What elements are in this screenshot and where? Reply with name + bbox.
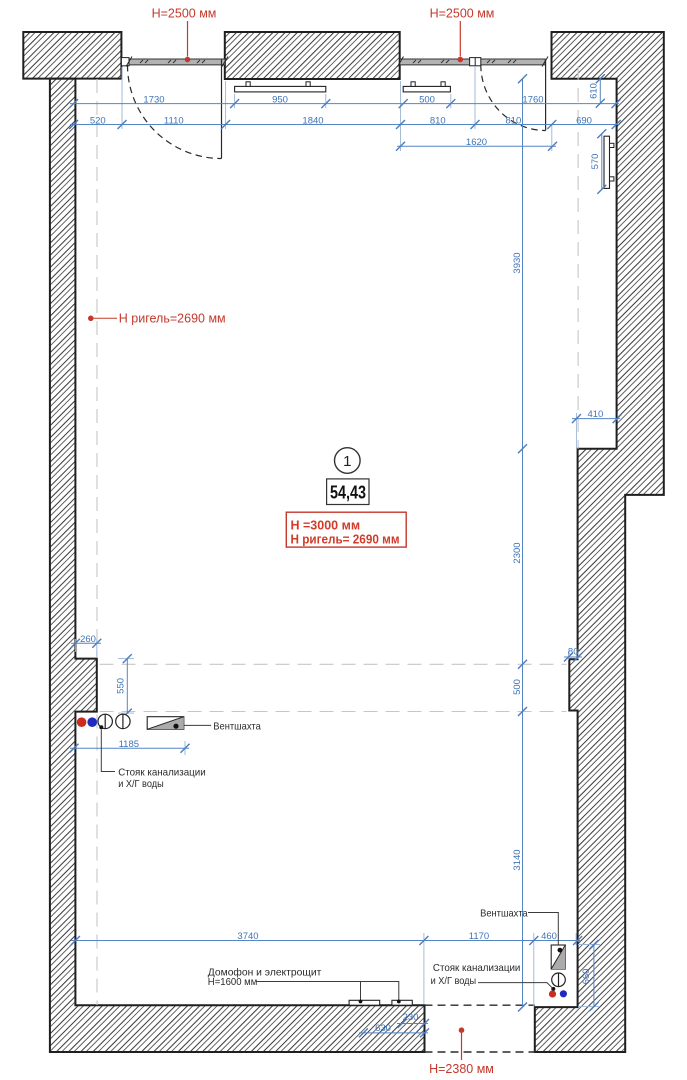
svg-text:2300: 2300 <box>512 542 523 563</box>
svg-text:Н ригель= 2690 мм: Н ригель= 2690 мм <box>291 532 400 546</box>
svg-text:1730: 1730 <box>143 94 164 105</box>
svg-text:630: 630 <box>375 1023 391 1034</box>
svg-text:Вентшахта: Вентшахта <box>213 720 261 732</box>
svg-text:810: 810 <box>505 115 521 126</box>
svg-text:1: 1 <box>343 453 351 470</box>
svg-text:Н ригель=2690 мм: Н ригель=2690 мм <box>119 311 226 325</box>
svg-text:1760: 1760 <box>522 94 543 105</box>
svg-text:Н=2500 мм: Н=2500 мм <box>152 7 217 21</box>
svg-text:Н=1600 мм: Н=1600 мм <box>208 976 257 988</box>
svg-text:и Х/Г воды: и Х/Г воды <box>431 975 477 987</box>
svg-text:500: 500 <box>419 94 435 105</box>
svg-text:3930: 3930 <box>512 252 523 273</box>
svg-text:570: 570 <box>590 154 601 170</box>
svg-text:54,43: 54,43 <box>330 483 366 503</box>
svg-text:410: 410 <box>587 409 603 420</box>
svg-text:Н =3000 мм: Н =3000 мм <box>291 519 361 533</box>
svg-text:690: 690 <box>576 115 592 126</box>
svg-text:1185: 1185 <box>119 739 139 750</box>
svg-text:460: 460 <box>541 931 557 942</box>
svg-text:950: 950 <box>272 94 288 105</box>
svg-text:1170: 1170 <box>469 931 489 942</box>
svg-text:1110: 1110 <box>164 115 184 126</box>
svg-text:500: 500 <box>512 679 523 695</box>
svg-text:Вентшахта: Вентшахта <box>480 907 528 919</box>
svg-text:260: 260 <box>80 634 96 645</box>
svg-text:80: 80 <box>568 647 579 658</box>
svg-text:Н=2500 мм: Н=2500 мм <box>430 7 495 21</box>
svg-text:3140: 3140 <box>512 849 523 870</box>
svg-text:и Х/Г воды: и Х/Г воды <box>118 778 164 790</box>
svg-text:1620: 1620 <box>466 137 487 148</box>
svg-text:Стояк канализации: Стояк канализации <box>433 962 521 974</box>
svg-text:660: 660 <box>581 969 592 985</box>
svg-text:3740: 3740 <box>237 931 258 942</box>
svg-text:230: 230 <box>403 1012 419 1023</box>
svg-text:1840: 1840 <box>302 115 323 126</box>
svg-text:Н=2380 мм: Н=2380 мм <box>429 1062 494 1076</box>
svg-text:810: 810 <box>430 115 446 126</box>
svg-text:610: 610 <box>589 83 600 99</box>
svg-text:520: 520 <box>90 115 106 126</box>
svg-text:550: 550 <box>116 678 127 694</box>
svg-text:Стояк канализации: Стояк канализации <box>118 767 206 779</box>
